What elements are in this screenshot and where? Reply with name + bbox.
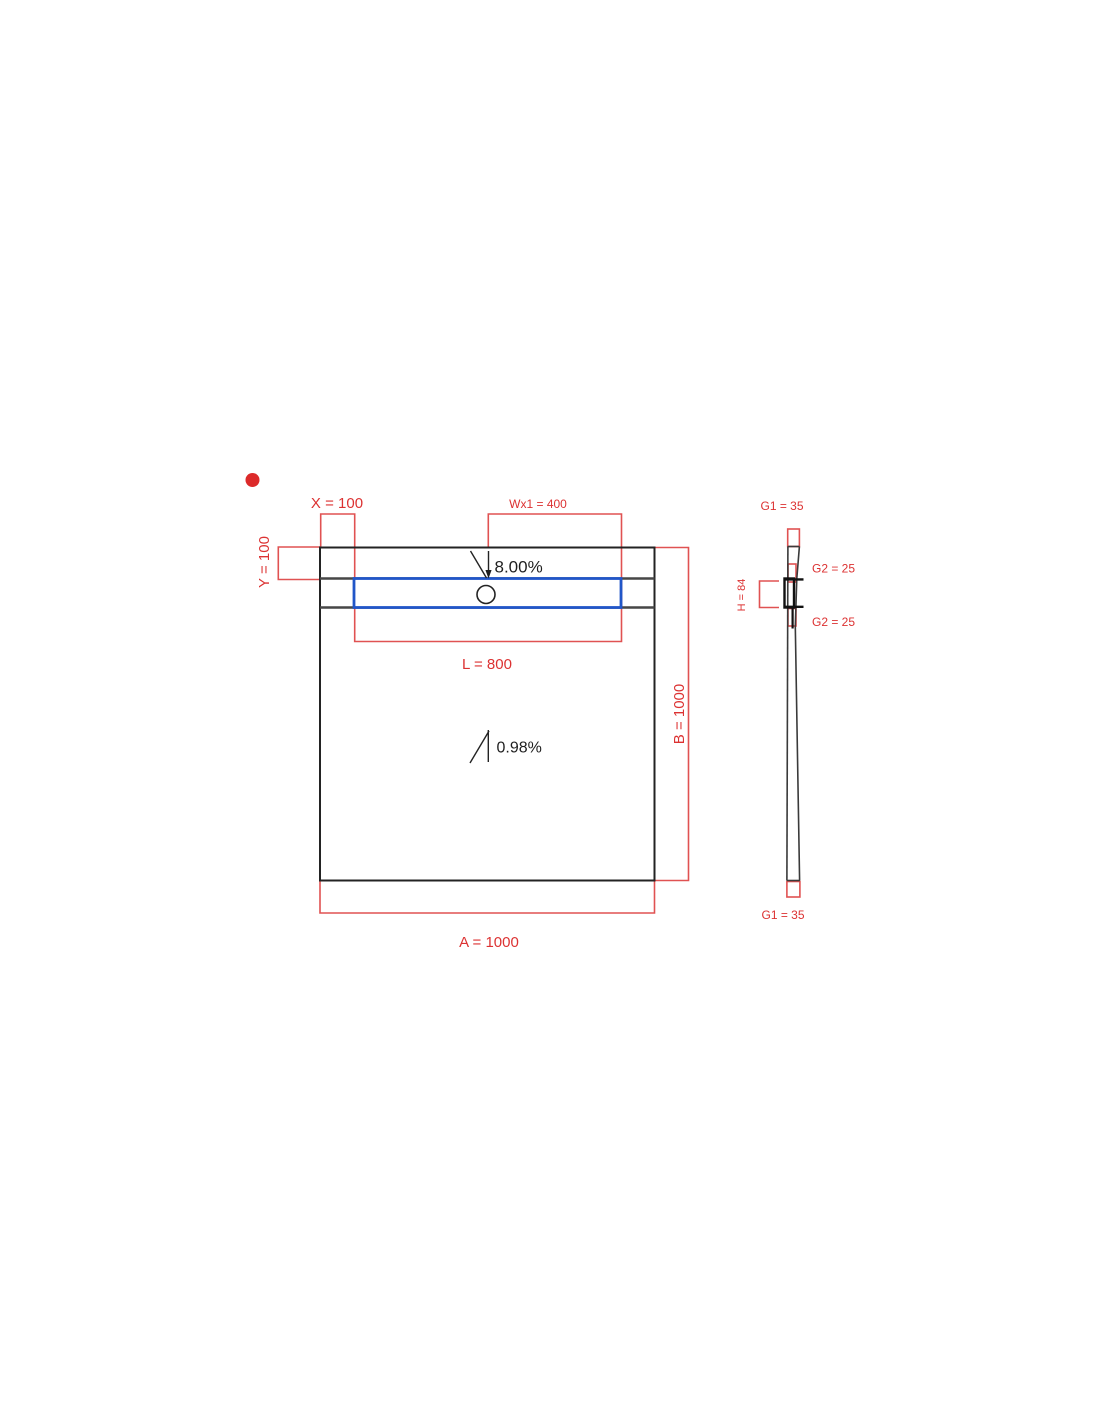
dim-b-label: B = 1000 — [671, 684, 688, 744]
dim-g1-top-rect — [788, 529, 800, 547]
red-marker-dot — [246, 473, 260, 487]
main-slope-mark-icon — [470, 730, 489, 763]
g1-top-label: G1 = 35 — [760, 499, 803, 513]
g2-upper-label: G2 = 25 — [812, 562, 855, 576]
dim-y-label: Y = 100 — [256, 536, 273, 588]
dim-a-label: A = 1000 — [459, 934, 519, 951]
top-slope-arrow-icon — [471, 551, 492, 579]
dim-y-lines — [278, 547, 320, 580]
top-slope-label: 8.00% — [495, 558, 543, 577]
dimension-labels: X = 100 Wx1 = 400 Y = 100 L = 800 B = 10… — [256, 495, 855, 951]
dim-wx1-label: Wx1 = 400 — [509, 497, 567, 511]
dim-h-lines — [760, 581, 780, 608]
g2-lower-label: G2 = 25 — [812, 615, 855, 629]
dim-g1-bottom-rect — [787, 882, 800, 898]
dim-x-label: X = 100 — [311, 495, 363, 512]
channel-section — [784, 579, 804, 629]
technical-drawing: X = 100 Wx1 = 400 Y = 100 L = 800 B = 10… — [0, 0, 1100, 1422]
dim-l-label: L = 800 — [462, 656, 512, 673]
main-slope-label: 0.98% — [497, 740, 542, 757]
dim-a-lines — [320, 881, 655, 914]
g1-bottom-label: G1 = 35 — [761, 908, 804, 922]
section-view — [784, 547, 804, 881]
h-label: H = 84 — [736, 579, 748, 612]
plan-view — [320, 548, 655, 881]
